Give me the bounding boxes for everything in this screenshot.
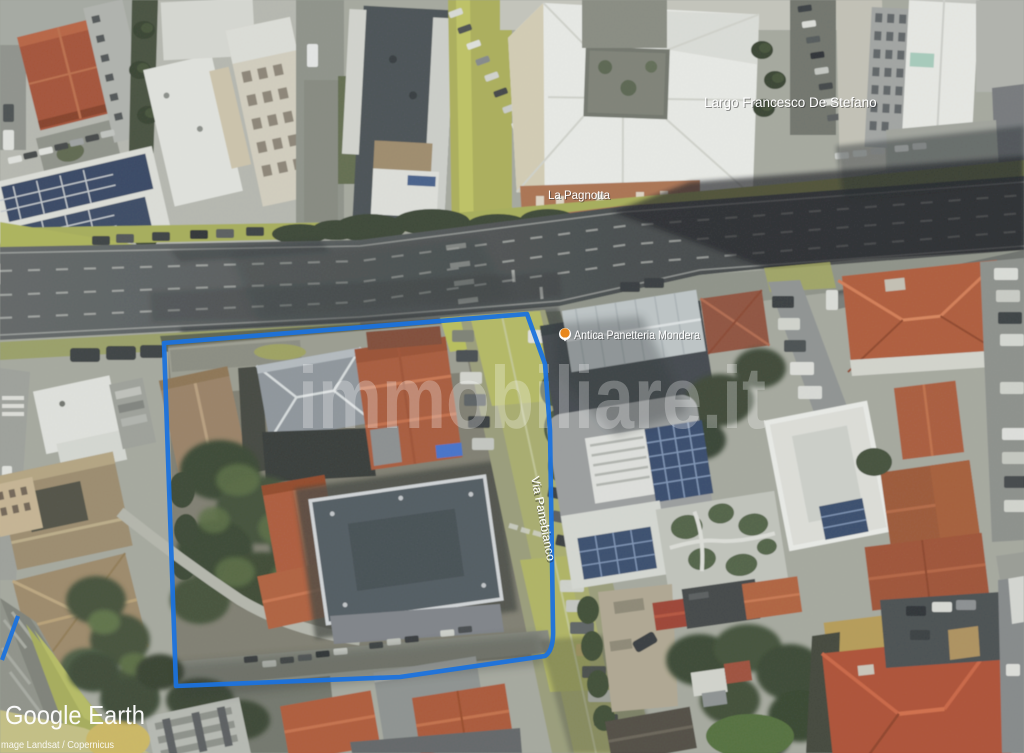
svg-text:immobiliare.it: immobiliare.it	[298, 348, 766, 447]
svg-text:Google Earth: Google Earth	[5, 700, 145, 730]
svg-text:La Pagnotta: La Pagnotta	[548, 190, 611, 202]
svg-text:mage Landsat / Copernicus: mage Landsat / Copernicus	[1, 739, 114, 751]
svg-text:Largo Francesco De Stefano: Largo Francesco De Stefano	[704, 95, 877, 110]
svg-text:Antica Panetteria Mondera: Antica Panetteria Mondera	[574, 328, 700, 342]
